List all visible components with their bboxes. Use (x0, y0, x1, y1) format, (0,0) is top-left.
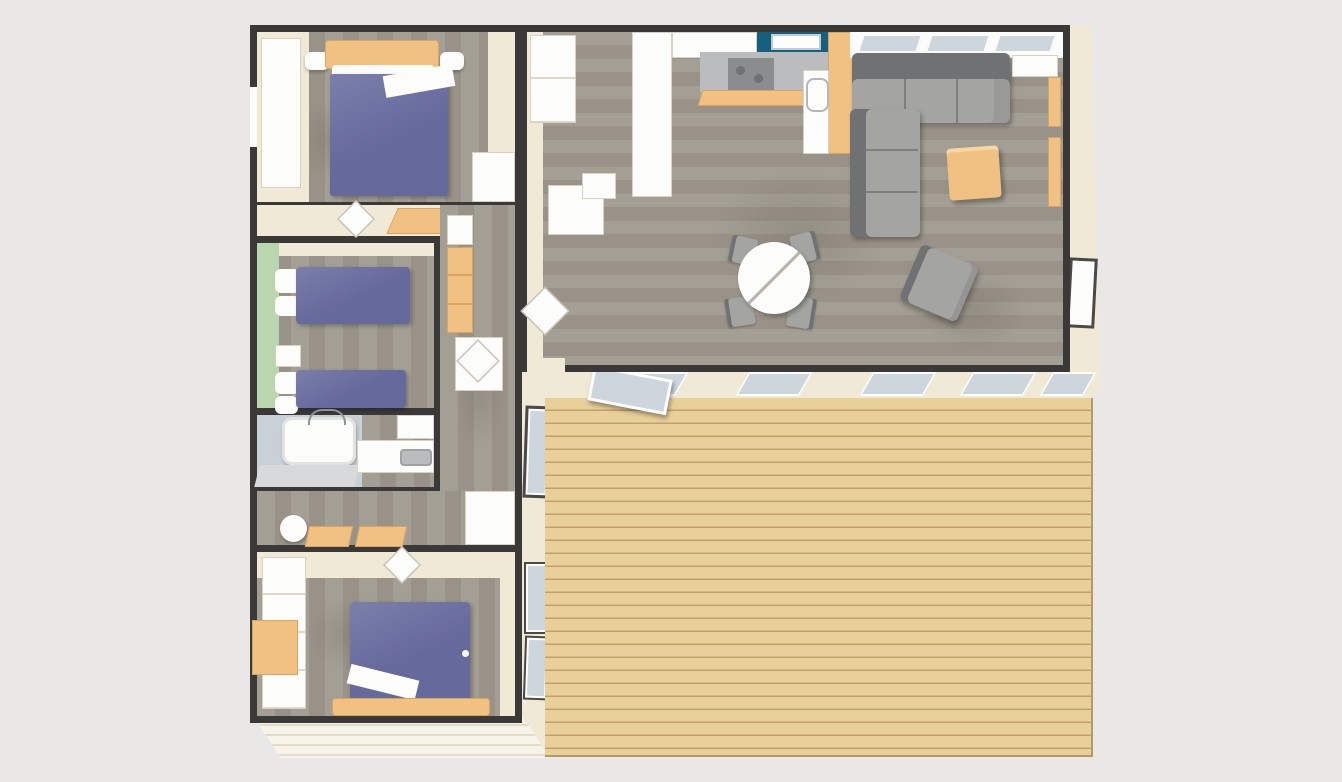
duvet-sheet-fold (347, 664, 420, 700)
bench-seat-2 (355, 526, 407, 547)
coffee-table (946, 145, 1002, 201)
bedroom2-wood-shelf (252, 620, 298, 675)
living-window-3 (993, 34, 1057, 53)
bedroom2-bed-footboard (332, 698, 490, 716)
sofa-cushion-seam (956, 79, 958, 123)
kitchen-sink (771, 34, 821, 50)
kitchen-cabinet-column (632, 32, 672, 197)
right-wing (520, 25, 1070, 372)
bathtub-faucet (308, 409, 346, 425)
wall-shelf-2 (1048, 137, 1061, 207)
twin-bed-2-duvet (296, 370, 406, 408)
bedroom2-right-wall (500, 552, 515, 716)
basin-unit (803, 70, 829, 154)
round-stool (280, 515, 307, 542)
bathroom-cabinet (397, 415, 434, 439)
master-corner-block (472, 152, 515, 202)
corridor-wardrobe-orange (447, 247, 473, 333)
floor-plan (0, 0, 1342, 782)
twin-bed-1-duvet (296, 267, 410, 324)
cooktop (728, 58, 774, 92)
entry-door-gap (527, 358, 565, 372)
master-wardrobe (261, 38, 301, 188)
twin2-pillow-b (275, 396, 298, 414)
living-window-2 (925, 34, 991, 53)
entry-closets (530, 35, 576, 123)
burner (754, 74, 763, 83)
inner-hallway-corner-wall (465, 491, 515, 545)
master-bed-duvet (330, 74, 448, 196)
corridor-shelf (447, 215, 473, 245)
bathroom-vanity (254, 465, 359, 487)
wooden-deck (545, 398, 1093, 757)
round-dining-table (738, 242, 810, 314)
twin-nightstand (275, 345, 301, 367)
bedroom2-bed-duvet (350, 602, 470, 702)
master-window (250, 87, 257, 147)
right-wall-window (1066, 257, 1098, 328)
living-window-1 (857, 34, 923, 53)
left-wing (250, 25, 522, 723)
side-table (1012, 55, 1058, 77)
entry-storage-small (582, 173, 616, 199)
sofa-cushion-seam (866, 149, 918, 151)
burner (736, 66, 745, 75)
corner-sofa-vertical (850, 109, 920, 237)
washbasin (400, 449, 432, 466)
sofa-cushion-seam (866, 191, 918, 193)
bench-seat-1 (305, 526, 353, 547)
basin (806, 78, 829, 112)
twin-top-wall (279, 243, 434, 256)
duvet-button (462, 650, 469, 657)
wall-shelf-1 (1048, 77, 1061, 127)
